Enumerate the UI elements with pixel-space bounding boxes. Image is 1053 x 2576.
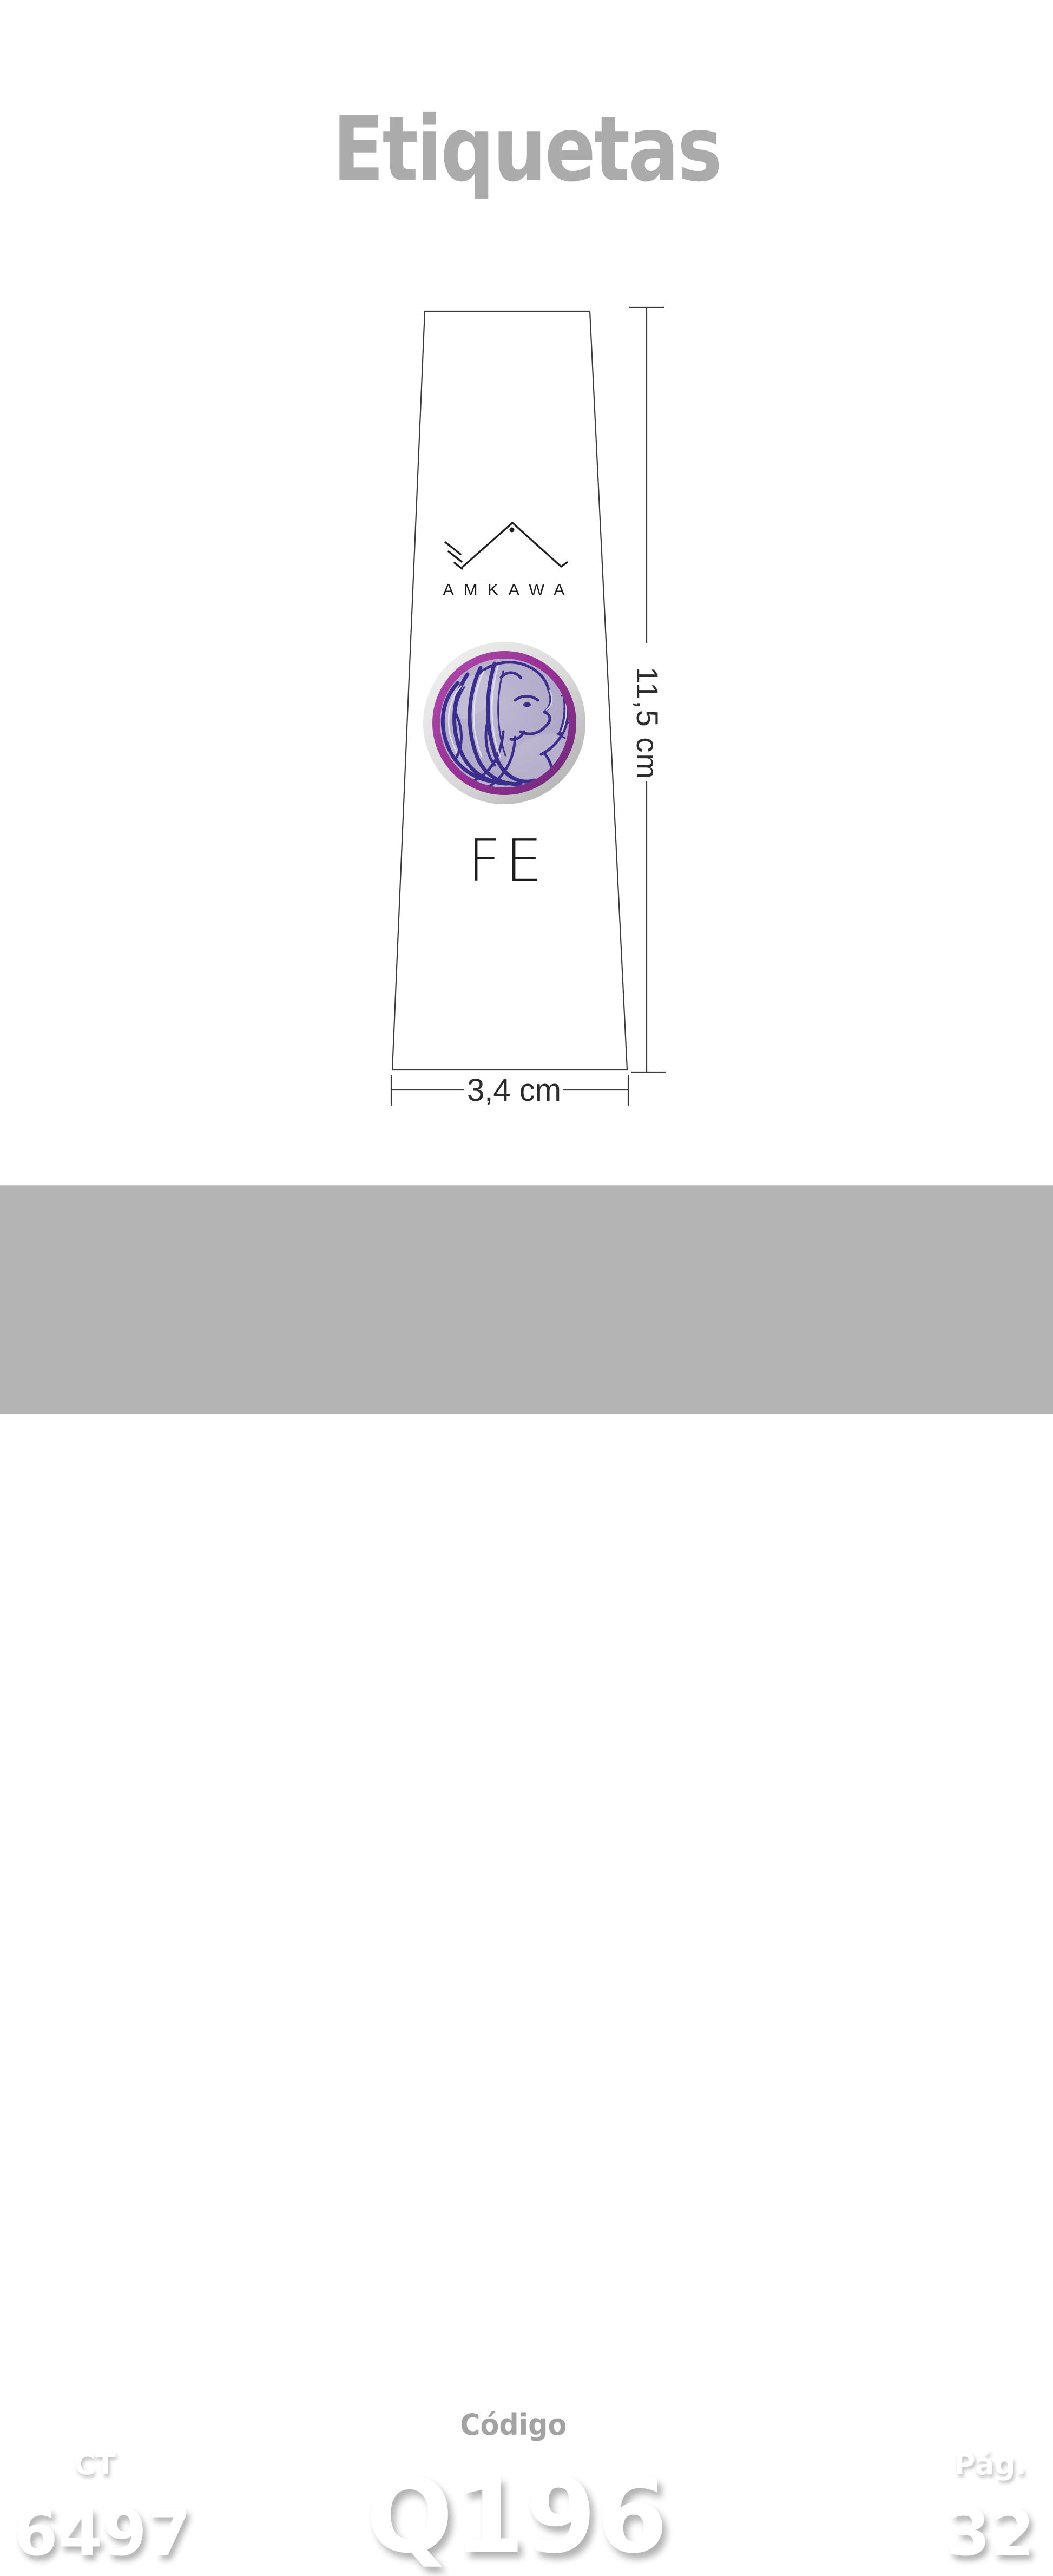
- brand-name: AMKAWA: [427, 580, 590, 600]
- page-number-label: Pág.: [909, 2450, 1053, 2479]
- code-value: Q196: [354, 2465, 679, 2568]
- width-dimension-label: 3,4 cm: [462, 1075, 567, 1106]
- label-product-text: FE: [426, 832, 588, 891]
- ct-label: CT: [14, 2450, 176, 2479]
- footer-bar: CT 6497 Código Q196 Pág. 32: [0, 1185, 1053, 1414]
- page-number-value: 32: [909, 2501, 1053, 2565]
- code-label: Código: [460, 2409, 567, 2440]
- code-pill: Código: [396, 2405, 630, 2444]
- height-dimension-label: 11,5 cm: [632, 667, 662, 780]
- ct-value: 6497: [14, 2501, 176, 2565]
